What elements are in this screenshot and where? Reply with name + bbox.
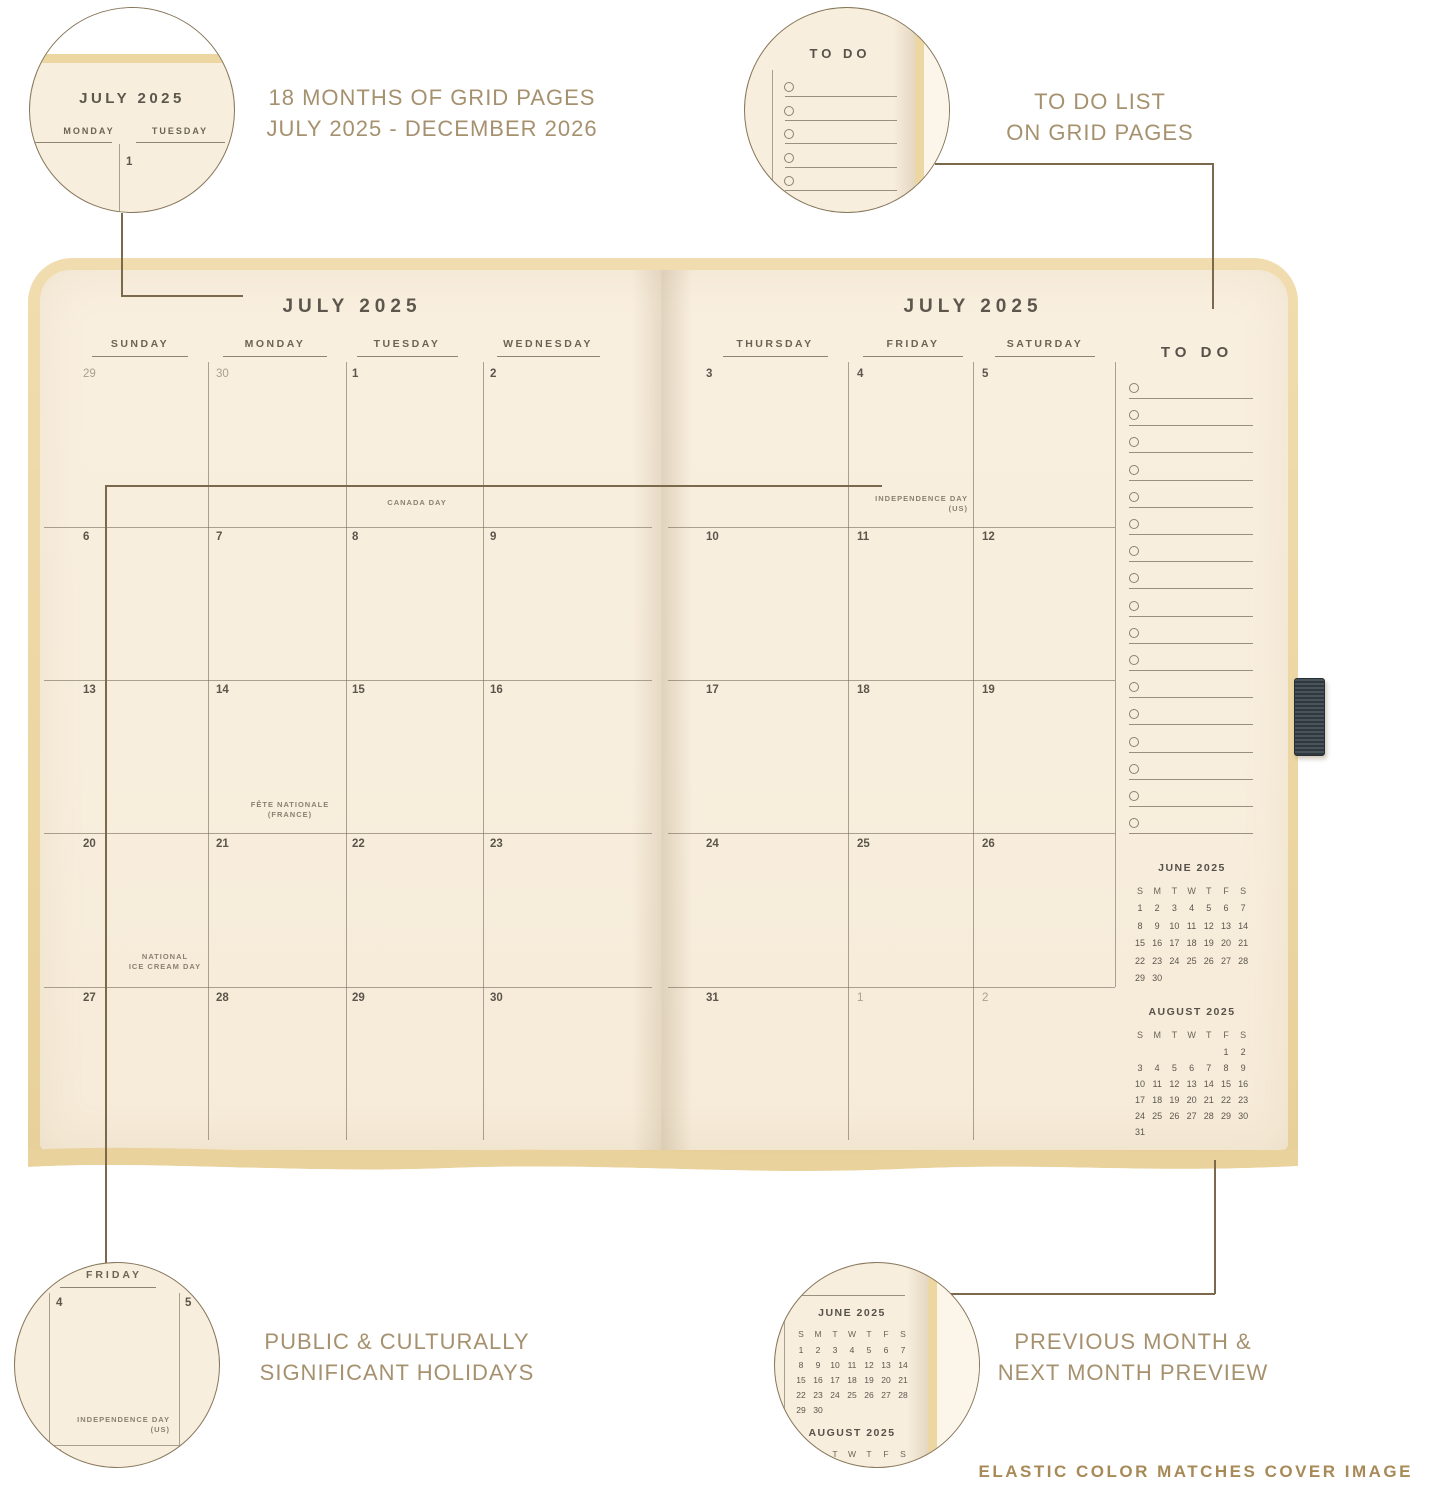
todo-item-dot <box>1129 791 1139 801</box>
holiday-callout-box-left <box>105 485 107 1263</box>
mini-calendar-date: 11 <box>1187 921 1196 931</box>
mini-calendar-date: 20 <box>881 1375 890 1385</box>
day-header-underline <box>863 356 963 357</box>
detail-cover-edge-band <box>30 54 235 63</box>
todo-item-dot <box>1129 492 1139 502</box>
todo-item-line <box>1129 643 1253 644</box>
calendar-date: 29 <box>352 992 365 1004</box>
detail-todo-dot <box>784 129 794 139</box>
connector-top-left-vertical <box>121 213 123 296</box>
day-header-thursday: THURSDAY <box>736 338 813 350</box>
mini-calendar-day-letter: M <box>814 1329 821 1339</box>
calendar-grid: SUNDAYMONDAYTUESDAYWEDNESDAYTHURSDAYFRID… <box>0 0 1431 1500</box>
mini-calendar-date: 9 <box>816 1360 821 1370</box>
mini-calendar-day-letter: S <box>900 1449 906 1459</box>
calendar-date: 23 <box>490 838 503 850</box>
mini-calendar-date: 27 <box>1187 1111 1197 1121</box>
mini-calendar-date: 1 <box>1223 1047 1228 1057</box>
calendar-date: 8 <box>352 531 358 543</box>
todo-item-line <box>1129 507 1253 508</box>
todo-item-dot <box>1129 709 1139 719</box>
calendar-date: 14 <box>216 684 229 696</box>
mini-calendar-date: 24 <box>830 1390 839 1400</box>
mini-calendar-date: 5 <box>1206 903 1211 913</box>
detail-tuesday-header: TUESDAY <box>152 126 208 136</box>
mini-calendar-day-letter: S <box>1240 886 1246 896</box>
mini-calendar-day-letter: T <box>1206 886 1212 896</box>
todo-item-line <box>1129 452 1253 453</box>
mini-calendar-date: 14 <box>1204 1079 1214 1089</box>
todo-item-line <box>1129 670 1253 671</box>
calendar-date: 22 <box>352 838 365 850</box>
mini-calendar-date: 21 <box>1238 938 1248 948</box>
connector-bottom-right-horizontal <box>951 1293 1215 1295</box>
mini-calendar-day-letter: W <box>1187 1030 1196 1040</box>
calendar-date: 1 <box>352 368 358 380</box>
grid-todo-divider <box>1115 362 1116 987</box>
detail-todo-dot <box>784 176 794 186</box>
mini-calendar-day-letter: S <box>900 1329 906 1339</box>
mini-calendar-date: 30 <box>813 1405 822 1415</box>
mini-calendar-day-letter: T <box>1172 1030 1178 1040</box>
mini-calendar-date: 17 <box>830 1375 839 1385</box>
mini-calendar-date: 16 <box>1152 938 1162 948</box>
grid-row-divider <box>44 527 652 528</box>
grid-column-divider <box>346 362 347 1140</box>
connector-top-left-horizontal <box>121 295 243 297</box>
calendar-date: 27 <box>83 992 96 1004</box>
todo-item-dot <box>1129 383 1139 393</box>
todo-item-line <box>1129 588 1253 589</box>
mini-calendar-date: 15 <box>1221 1079 1231 1089</box>
mini-calendar-date: 4 <box>1155 1063 1160 1073</box>
calendar-date: 2 <box>982 992 988 1004</box>
mini-calendar-date: 14 <box>1238 921 1248 931</box>
calendar-date: 6 <box>83 531 89 543</box>
mini-calendar-date: 4 <box>1189 903 1194 913</box>
mini-calendar-date: 30 <box>1238 1111 1248 1121</box>
mini-calendar-date: 12 <box>1169 1079 1179 1089</box>
mini-calendar-date: 7 <box>1206 1063 1211 1073</box>
detail-date-5: 5 <box>185 1297 191 1309</box>
todo-item-dot <box>1129 465 1139 475</box>
mini-calendar-day-letter: T <box>866 1329 871 1339</box>
calendar-date: 1 <box>857 992 863 1004</box>
grid-column-divider <box>483 362 484 1140</box>
detail-column-divider <box>119 144 120 213</box>
detail-todo-line <box>785 96 897 97</box>
mini-calendar-day-letter: T <box>832 1449 837 1459</box>
detail-cover-edge-band <box>915 8 924 213</box>
detail-todo-line <box>785 190 897 191</box>
mini-calendar-day-letter: T <box>1172 886 1178 896</box>
mini-calendar-date: 18 <box>847 1375 856 1385</box>
callout-holiday-detail: FRIDAY 4 5 11 INDEPENDENCE DAY (US) <box>14 1262 220 1468</box>
detail-independence-day-label: INDEPENDENCE DAY (US) <box>77 1415 170 1434</box>
mini-calendar-day-letter: W <box>848 1329 856 1339</box>
mini-calendar-date: 17 <box>1135 1095 1145 1105</box>
mini-calendar-date: 3 <box>1137 1063 1142 1073</box>
todo-item-dot <box>1129 655 1139 665</box>
calendar-date: 30 <box>216 368 229 380</box>
mini-calendar-date: 8 <box>799 1360 804 1370</box>
calendar-date: 4 <box>857 368 863 380</box>
detail-month-title: JULY 2025 <box>79 90 185 107</box>
todo-item-line <box>1129 724 1253 725</box>
day-header-underline <box>223 356 327 357</box>
mini-calendar-date: 18 <box>1187 938 1197 948</box>
mini-calendar-title: JUNE 2025 <box>818 1307 886 1319</box>
detail-cover-edge-band <box>928 1263 937 1468</box>
mini-calendar-date: 3 <box>833 1345 838 1355</box>
day-header-friday: FRIDAY <box>886 338 939 350</box>
mini-calendar-title: AUGUST 2025 <box>808 1427 895 1439</box>
detail-page-edge-shadow <box>893 8 915 213</box>
mini-calendar-day-letter: T <box>1206 1030 1212 1040</box>
todo-item-dot <box>1129 437 1139 447</box>
todo-item-dot <box>1129 601 1139 611</box>
calendar-date: 16 <box>490 684 503 696</box>
day-header-underline <box>995 356 1095 357</box>
mini-calendar-date: 25 <box>1152 1111 1162 1121</box>
todo-item-line <box>1129 752 1253 753</box>
day-header-monday: MONDAY <box>245 338 306 350</box>
calendar-date: 10 <box>706 531 719 543</box>
mini-calendar-date: 12 <box>864 1360 873 1370</box>
mini-calendar-date: 24 <box>1169 956 1179 966</box>
todo-item-dot <box>1129 818 1139 828</box>
detail-monday-header: MONDAY <box>63 126 114 136</box>
mini-calendar-date: 29 <box>1135 973 1145 983</box>
mini-calendar-date: 10 <box>1135 1079 1145 1089</box>
calendar-date: 29 <box>83 368 96 380</box>
detail-date-1: 1 <box>126 156 132 168</box>
detail-date-4: 4 <box>56 1297 62 1309</box>
todo-item-line <box>1129 480 1253 481</box>
mini-calendar-date: 25 <box>1187 956 1197 966</box>
detail-todo-dot <box>784 82 794 92</box>
mini-calendar-date: 27 <box>1221 956 1231 966</box>
todo-item-line <box>1129 561 1253 562</box>
page-deckle-edge <box>0 1125 1431 1215</box>
day-header-sunday: SUNDAY <box>111 338 169 350</box>
mini-calendar-date: 25 <box>847 1390 856 1400</box>
mini-calendar-day-letter: F <box>1223 886 1229 896</box>
mini-calendar-date: 17 <box>1169 938 1179 948</box>
mini-calendar-day-letter: T <box>832 1329 837 1339</box>
calendar-date: 24 <box>706 838 719 850</box>
mini-calendar-date: 6 <box>1223 903 1228 913</box>
detail-cell-border-bottom <box>33 1445 183 1446</box>
mini-calendar-date: 2 <box>816 1345 821 1355</box>
mini-calendar-date: 10 <box>1169 921 1179 931</box>
holiday-label: INDEPENDENCE DAY(US) <box>875 494 968 513</box>
mini-calendar-date: 29 <box>1221 1111 1231 1121</box>
calendar-date: 26 <box>982 838 995 850</box>
day-header-underline <box>92 356 188 357</box>
mini-calendar-date: 13 <box>1187 1079 1197 1089</box>
calendar-date: 12 <box>982 531 995 543</box>
calendar-date: 28 <box>216 992 229 1004</box>
mini-calendar-date: 3 <box>1172 903 1177 913</box>
mini-calendar-date: 15 <box>1135 938 1145 948</box>
todo-item-dot <box>1129 546 1139 556</box>
detail-friday-header: FRIDAY <box>86 1269 142 1281</box>
mini-calendar-date: 21 <box>1204 1095 1214 1105</box>
day-header-saturday: SATURDAY <box>1007 338 1084 350</box>
day-header-tuesday: TUESDAY <box>374 338 441 350</box>
mini-calendar-date: 30 <box>1152 973 1162 983</box>
holiday-label: CANADA DAY <box>387 498 446 508</box>
grid-row-divider <box>44 987 652 988</box>
mini-calendar-date: 6 <box>1189 1063 1194 1073</box>
mini-calendar-date: 11 <box>848 1360 857 1370</box>
detail-header-underline <box>136 142 225 143</box>
mini-calendar-day-letter: M <box>1153 1030 1161 1040</box>
mini-calendar-date: 2 <box>1155 903 1160 913</box>
mini-calendar-date: 27 <box>881 1390 890 1400</box>
mini-calendar-day-letter: S <box>1137 1030 1143 1040</box>
todo-item-line <box>1129 697 1253 698</box>
mini-calendar-date: 19 <box>1169 1095 1179 1105</box>
mini-calendar-day-letter: M <box>1153 886 1161 896</box>
todo-item-dot <box>1129 682 1139 692</box>
mini-calendar-date: 7 <box>1241 903 1246 913</box>
mini-calendar-date: 8 <box>1137 921 1142 931</box>
mini-calendar-date: 22 <box>1221 1095 1231 1105</box>
detail-background-right <box>924 8 950 213</box>
mini-calendar-title: JUNE 2025 <box>1158 862 1226 874</box>
todo-item-dot <box>1129 410 1139 420</box>
mini-calendar-day-letter: S <box>1240 1030 1246 1040</box>
detail-header-underline <box>60 1287 156 1288</box>
connector-top-right-horizontal <box>935 163 1213 165</box>
mini-calendar-date: 13 <box>1221 921 1231 931</box>
mini-calendar-date: 12 <box>1204 921 1214 931</box>
connector-bottom-right-vertical <box>1214 1160 1216 1294</box>
calendar-date: 11 <box>857 531 869 543</box>
calendar-date: 2 <box>490 368 496 380</box>
grid-column-divider <box>973 362 974 1140</box>
calendar-date: 5 <box>982 368 988 380</box>
mini-calendar-date: 23 <box>813 1390 822 1400</box>
mini-calendar-day-letter: S <box>1137 886 1143 896</box>
calendar-date: 18 <box>857 684 870 696</box>
day-header-wednesday: WEDNESDAY <box>503 338 593 350</box>
mini-calendar-date: 23 <box>1238 1095 1248 1105</box>
day-header-underline <box>357 356 458 357</box>
mini-calendar-date: 22 <box>796 1390 805 1400</box>
day-header-underline <box>497 356 600 357</box>
calendar-date: 15 <box>352 684 365 696</box>
holiday-label: NATIONALICE CREAM DAY <box>129 952 201 971</box>
detail-header-underline <box>32 142 112 143</box>
grid-column-divider <box>208 362 209 1140</box>
todo-item-dot <box>1129 628 1139 638</box>
todo-item-dot <box>1129 573 1139 583</box>
mini-calendar-date: 19 <box>864 1375 873 1385</box>
mini-calendar-day-letter: S <box>798 1329 804 1339</box>
mini-calendar-date: 26 <box>1204 956 1214 966</box>
calendar-date: 7 <box>216 531 222 543</box>
mini-calendar-date: 26 <box>1169 1111 1179 1121</box>
mini-calendar-date: 2 <box>1241 1047 1246 1057</box>
todo-item-line <box>1129 779 1253 780</box>
todo-item-line <box>1129 616 1253 617</box>
calendar-date: 3 <box>706 368 712 380</box>
mini-calendar-date: 13 <box>881 1360 890 1370</box>
todo-item-dot <box>1129 737 1139 747</box>
mini-calendar-date: 22 <box>1135 956 1145 966</box>
calendar-date: 17 <box>706 684 719 696</box>
mini-calendar-date: 19 <box>1204 938 1214 948</box>
todo-item-line <box>1129 534 1253 535</box>
mini-calendar-date: 7 <box>901 1345 906 1355</box>
mini-calendar-date: 9 <box>1155 921 1160 931</box>
calendar-date: 21 <box>216 838 229 850</box>
mini-calendar-date: 6 <box>884 1345 889 1355</box>
detail-todo-line <box>785 120 897 121</box>
mini-calendar-date: 20 <box>1187 1095 1197 1105</box>
mini-calendar-date: 26 <box>864 1390 873 1400</box>
grid-row-divider <box>44 680 652 681</box>
mini-calendar-day-letter: F <box>1223 1030 1229 1040</box>
mini-calendar-date: 18 <box>1152 1095 1162 1105</box>
callout-month-header-detail: JULY 2025 MONDAY TUESDAY 1 <box>29 7 235 213</box>
mini-calendar-date: 28 <box>1238 956 1248 966</box>
mini-calendar-date: 8 <box>1223 1063 1228 1073</box>
todo-item-dot <box>1129 519 1139 529</box>
callout-month-preview-detail: JUNE 2025SMTWTFS123456789101112131415161… <box>774 1262 980 1468</box>
mini-calendar-day-letter: T <box>866 1449 871 1459</box>
detail-background-right <box>937 1263 980 1468</box>
holiday-callout-box-top <box>105 485 882 487</box>
mini-calendar-date: 1 <box>1137 903 1142 913</box>
mini-calendar-date: 16 <box>1238 1079 1248 1089</box>
mini-calendar-day-letter: W <box>848 1449 856 1459</box>
detail-todo-line <box>785 143 897 144</box>
detail-cell-border-left <box>49 1293 50 1445</box>
grid-column-divider <box>848 362 849 1140</box>
calendar-date: 20 <box>83 838 96 850</box>
calendar-date: 25 <box>857 838 870 850</box>
mini-calendar-date: 23 <box>1152 956 1162 966</box>
mini-calendar-date: 28 <box>1204 1111 1214 1121</box>
calendar-date: 19 <box>982 684 995 696</box>
day-header-underline <box>723 356 828 357</box>
detail-todo-dot <box>784 106 794 116</box>
detail-date-11: 11 <box>51 1449 63 1461</box>
calendar-date: 9 <box>490 531 496 543</box>
todo-item-line <box>1129 833 1253 834</box>
todo-item-line <box>1129 425 1253 426</box>
mini-calendar-date: 4 <box>850 1345 855 1355</box>
planner-product-image: 18 MONTHS OF GRID PAGES JULY 2025 - DECE… <box>0 0 1431 1500</box>
mini-calendar-day-letter: S <box>798 1449 804 1459</box>
detail-cell-border-right <box>179 1293 180 1445</box>
pen-loop-elastic <box>1294 678 1325 756</box>
mini-calendar-date: 5 <box>1172 1063 1177 1073</box>
calendar-date: 31 <box>706 992 719 1004</box>
mini-calendar-date: 20 <box>1221 938 1231 948</box>
mini-calendar-date: 1 <box>799 1345 804 1355</box>
mini-calendar-day-letter: W <box>1187 886 1196 896</box>
todo-item-line <box>1129 806 1253 807</box>
calendar-date: 30 <box>490 992 503 1004</box>
grid-row-divider <box>668 527 1115 528</box>
todo-item-dot <box>1129 764 1139 774</box>
mini-calendar-date: 16 <box>813 1375 822 1385</box>
grid-row-divider <box>44 833 652 834</box>
todo-item-line <box>1129 398 1253 399</box>
detail-page-edge-shadow <box>907 1263 928 1468</box>
mini-calendar-date: 15 <box>796 1375 805 1385</box>
callout-todo-detail: TO DO <box>744 7 950 213</box>
holiday-label: FÊTE NATIONALE(FRANCE) <box>251 800 329 819</box>
mini-calendar-date: 24 <box>1135 1111 1145 1121</box>
mini-calendar-date: 5 <box>867 1345 872 1355</box>
mini-calendar-day-letter: F <box>883 1449 888 1459</box>
grid-row-divider <box>668 833 1115 834</box>
mini-calendar-date: 9 <box>1241 1063 1246 1073</box>
grid-row-divider <box>668 680 1115 681</box>
mini-calendar-title: AUGUST 2025 <box>1148 1006 1235 1018</box>
grid-row-divider <box>668 987 1115 988</box>
detail-background-white <box>30 8 235 54</box>
detail-todo-dot <box>784 153 794 163</box>
mini-calendar-day-letter: F <box>883 1329 888 1339</box>
mini-calendar-date: 10 <box>830 1360 839 1370</box>
mini-calendar-day-letter: M <box>814 1449 821 1459</box>
mini-calendar-date: 11 <box>1153 1079 1162 1089</box>
connector-top-right-vertical <box>1212 163 1214 309</box>
detail-todo-line <box>785 167 897 168</box>
calendar-date: 13 <box>83 684 96 696</box>
mini-calendar-date: 29 <box>796 1405 805 1415</box>
